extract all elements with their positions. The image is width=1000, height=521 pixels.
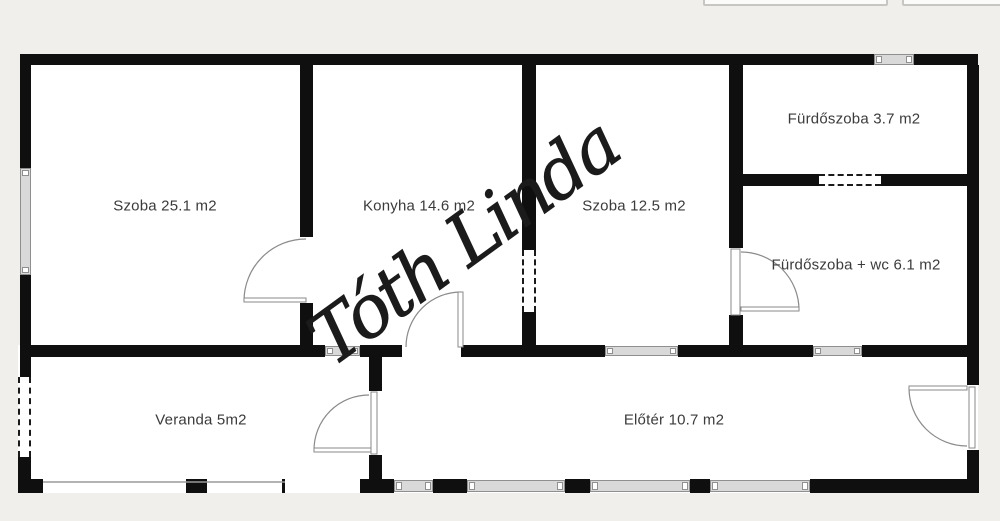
room-label-szoba-nagy: Szoba 25.1 m2	[113, 198, 217, 215]
room-label-furdoszoba: Fürdőszoba 3.7 m2	[788, 111, 921, 128]
door-leaf-szoba	[244, 298, 306, 302]
door-arc-eloter-exterior	[909, 388, 967, 446]
door-leaf-furdo-wc-closed	[731, 249, 740, 315]
room-label-konyha: Konyha 14.6 m2	[363, 198, 475, 215]
door-leaf-eloter-closed	[969, 387, 975, 448]
door-leaf-eloter-open	[909, 386, 967, 390]
door-leaf-veranda-closed	[371, 392, 377, 454]
door-leaf-konyha	[458, 292, 463, 347]
door-arc-szoba	[244, 239, 306, 301]
room-label-veranda: Veranda 5m2	[155, 412, 246, 429]
door-leaf-furdo-wc-open	[741, 307, 799, 311]
door-leaf-veranda-open	[314, 448, 371, 452]
door-arc-veranda	[314, 395, 369, 450]
room-label-furdoszoba-wc: Fürdőszoba + wc 6.1 m2	[771, 257, 940, 274]
floor-plan: Tóth Linda Szoba 25.1 m2 Konyha 14.6 m2 …	[0, 0, 1000, 521]
room-label-eloter: Előtér 10.7 m2	[624, 412, 724, 429]
room-label-szoba-kis: Szoba 12.5 m2	[582, 198, 686, 215]
